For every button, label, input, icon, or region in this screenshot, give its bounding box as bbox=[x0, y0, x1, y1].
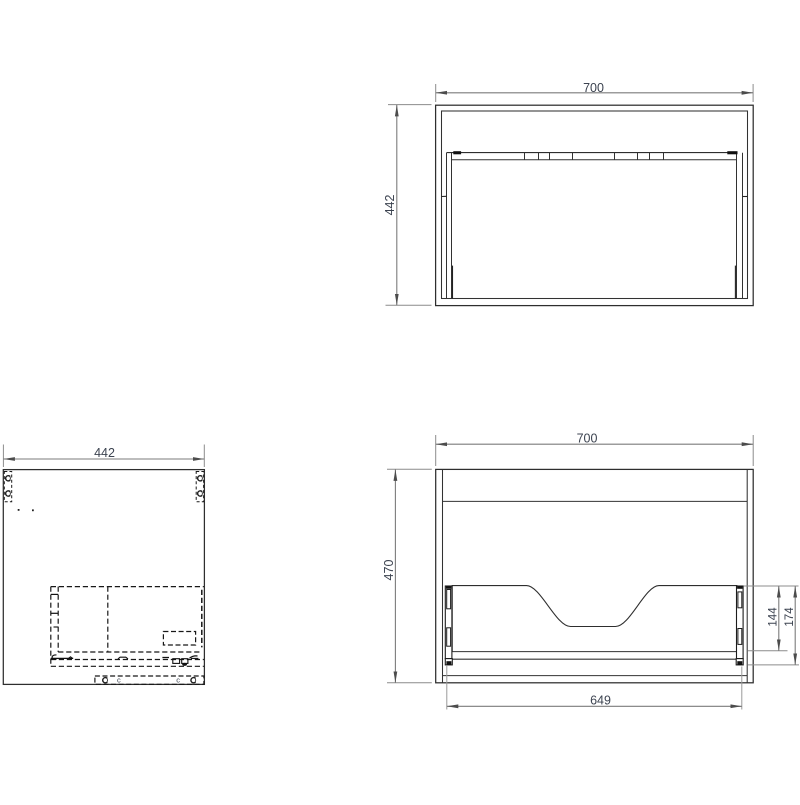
svg-text:442: 442 bbox=[383, 195, 397, 216]
svg-text:442: 442 bbox=[94, 446, 115, 460]
svg-text:470: 470 bbox=[382, 560, 396, 581]
svg-text:c: c bbox=[117, 676, 121, 685]
svg-text:700: 700 bbox=[577, 432, 598, 446]
svg-text:700: 700 bbox=[583, 81, 604, 95]
svg-text:c: c bbox=[176, 676, 180, 685]
svg-text:144: 144 bbox=[767, 607, 779, 627]
svg-text:649: 649 bbox=[590, 694, 611, 708]
svg-text:174: 174 bbox=[784, 607, 796, 627]
